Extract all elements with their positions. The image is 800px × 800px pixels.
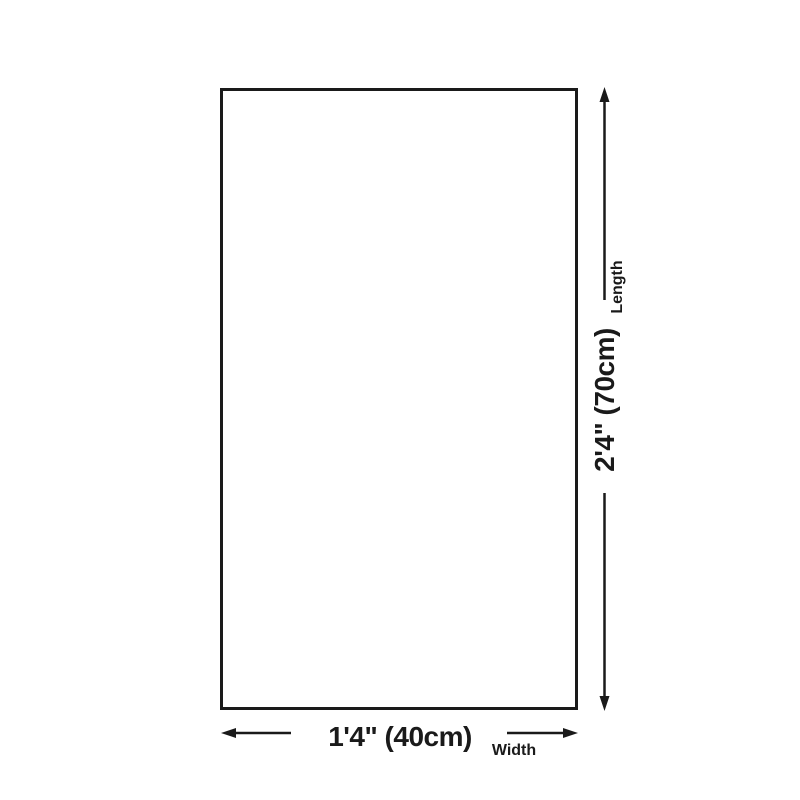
- width-value: 1'4" (40cm): [328, 721, 472, 753]
- length-value: 2'4" (70cm): [589, 328, 621, 472]
- length-label: Length: [609, 260, 627, 313]
- width-label: Width: [492, 742, 536, 760]
- arrow-left-icon: [221, 728, 236, 738]
- arrow-down-icon: [600, 696, 610, 711]
- product-outline-rect: [220, 88, 578, 710]
- arrow-right-icon: [563, 728, 578, 738]
- arrow-up-icon: [600, 87, 610, 102]
- dimension-diagram: 2'4" (70cm) Length 1'4" (40cm) Width: [0, 0, 800, 800]
